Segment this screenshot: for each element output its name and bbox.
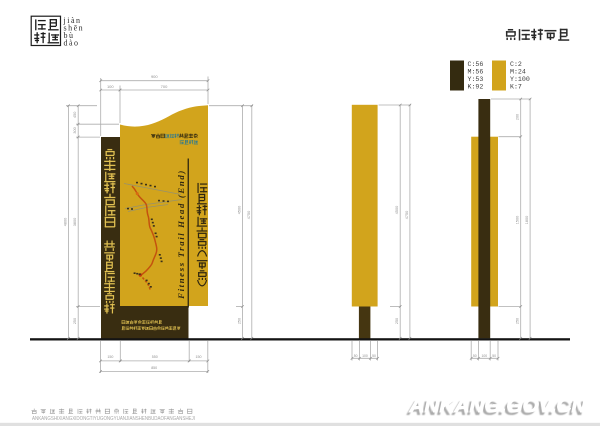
svg-text:C:2: C:2 [510,61,522,68]
svg-text:900: 900 [151,74,158,79]
svg-text:100: 100 [362,354,368,358]
svg-text:100: 100 [481,354,487,358]
svg-text:1500: 1500 [516,216,520,224]
svg-text:150: 150 [196,355,202,359]
svg-text:200: 200 [516,114,520,120]
svg-text:dào: dào [64,39,80,48]
svg-text:250: 250 [395,318,399,324]
svg-text:4750: 4750 [247,211,251,219]
svg-text:C:56: C:56 [468,61,484,68]
svg-text:M:56: M:56 [468,69,484,76]
svg-text:250: 250 [516,318,520,324]
svg-text:50: 50 [372,354,376,358]
svg-text:Y:53: Y:53 [468,76,484,83]
svg-text:ANKANGSHIXIANGXIDONGTIYUGONGYU: ANKANGSHIXIANGXIDONGTIYUGONGYUANJIANSHEN… [32,416,195,422]
svg-text:K:92: K:92 [468,84,484,91]
svg-text:150: 150 [107,355,113,359]
svg-text:1800: 1800 [525,216,529,224]
svg-text:700: 700 [161,84,168,89]
svg-text:300: 300 [73,127,77,133]
svg-text:4800: 4800 [63,218,67,226]
svg-text:Fitness Trail Head (End): Fitness Trail Head (End) [176,169,186,300]
svg-text:250: 250 [237,318,241,324]
svg-text:50: 50 [492,354,496,358]
svg-text:50: 50 [354,354,358,358]
svg-text:K:7: K:7 [510,84,522,91]
svg-text:100: 100 [107,84,114,89]
svg-text:850: 850 [151,366,157,370]
svg-text:ANKANG.GOV.CN: ANKANG.GOV.CN [408,396,587,417]
svg-text:4750: 4750 [405,211,409,219]
svg-text:4500: 4500 [395,206,399,214]
svg-text:Y:100: Y:100 [510,76,530,83]
svg-text:450: 450 [73,112,77,118]
svg-text:3800: 3800 [73,218,77,226]
svg-text:550: 550 [152,355,158,359]
svg-text:50: 50 [473,354,477,358]
svg-text:4500: 4500 [237,206,241,214]
svg-text:250: 250 [73,318,77,324]
svg-text:M:24: M:24 [510,69,526,76]
